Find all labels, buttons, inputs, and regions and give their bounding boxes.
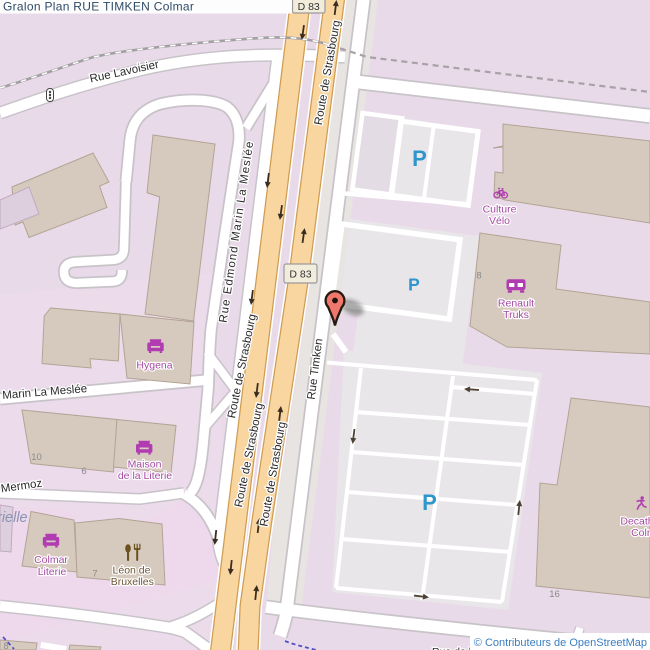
svg-text:rielle: rielle — [0, 510, 28, 526]
svg-text:D 83: D 83 — [289, 269, 311, 281]
svg-text:8: 8 — [3, 641, 8, 650]
svg-text:Léon de: Léon de — [113, 565, 151, 577]
svg-text:Truks: Truks — [503, 309, 529, 321]
svg-text:6: 6 — [81, 466, 86, 477]
svg-text:D 83: D 83 — [298, 1, 320, 13]
svg-text:P: P — [422, 490, 437, 515]
svg-text:Colmar: Colmar — [34, 554, 68, 566]
svg-text:Vélo: Vélo — [489, 215, 510, 227]
svg-text:Culture: Culture — [483, 204, 517, 216]
svg-text:Colmar: Colmar — [631, 527, 650, 539]
svg-text:de la Literie: de la Literie — [118, 470, 172, 482]
svg-text:Literie: Literie — [38, 566, 67, 578]
svg-text:Decathlon: Decathlon — [620, 516, 650, 528]
svg-text:Maison: Maison — [128, 459, 162, 471]
svg-text:Hygena: Hygena — [136, 360, 172, 372]
svg-text:8: 8 — [476, 271, 481, 282]
svg-text:© Contributeurs de OpenStreetM: © Contributeurs de OpenStreetMap — [474, 637, 647, 649]
svg-text:Renault: Renault — [498, 298, 534, 310]
svg-text:P: P — [408, 275, 420, 295]
svg-text:P: P — [412, 146, 427, 171]
svg-text:16: 16 — [549, 589, 560, 600]
svg-text:10: 10 — [31, 452, 42, 463]
svg-text:Bruxelles: Bruxelles — [111, 576, 154, 588]
svg-text:Gralon Plan RUE TIMKEN Colmar: Gralon Plan RUE TIMKEN Colmar — [3, 0, 194, 14]
svg-text:7: 7 — [92, 569, 97, 580]
